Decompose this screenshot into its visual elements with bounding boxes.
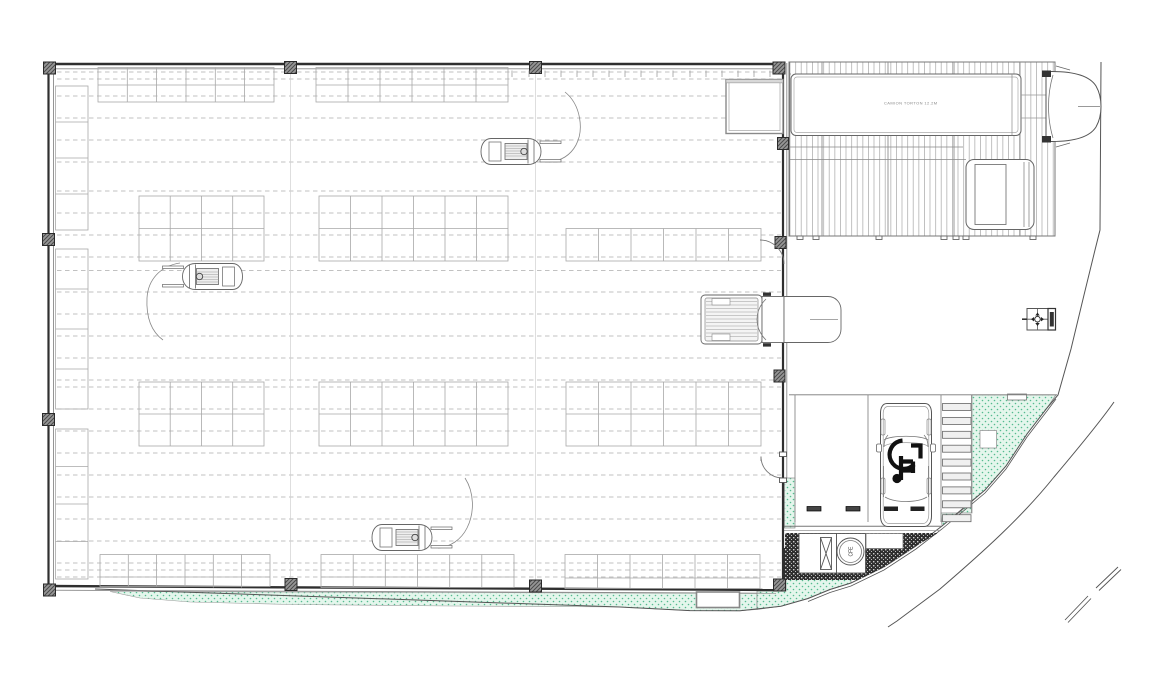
svg-text:CAMION TORTON 12.2M: CAMION TORTON 12.2M bbox=[884, 101, 938, 106]
svg-text:CFE: CFE bbox=[849, 546, 855, 557]
